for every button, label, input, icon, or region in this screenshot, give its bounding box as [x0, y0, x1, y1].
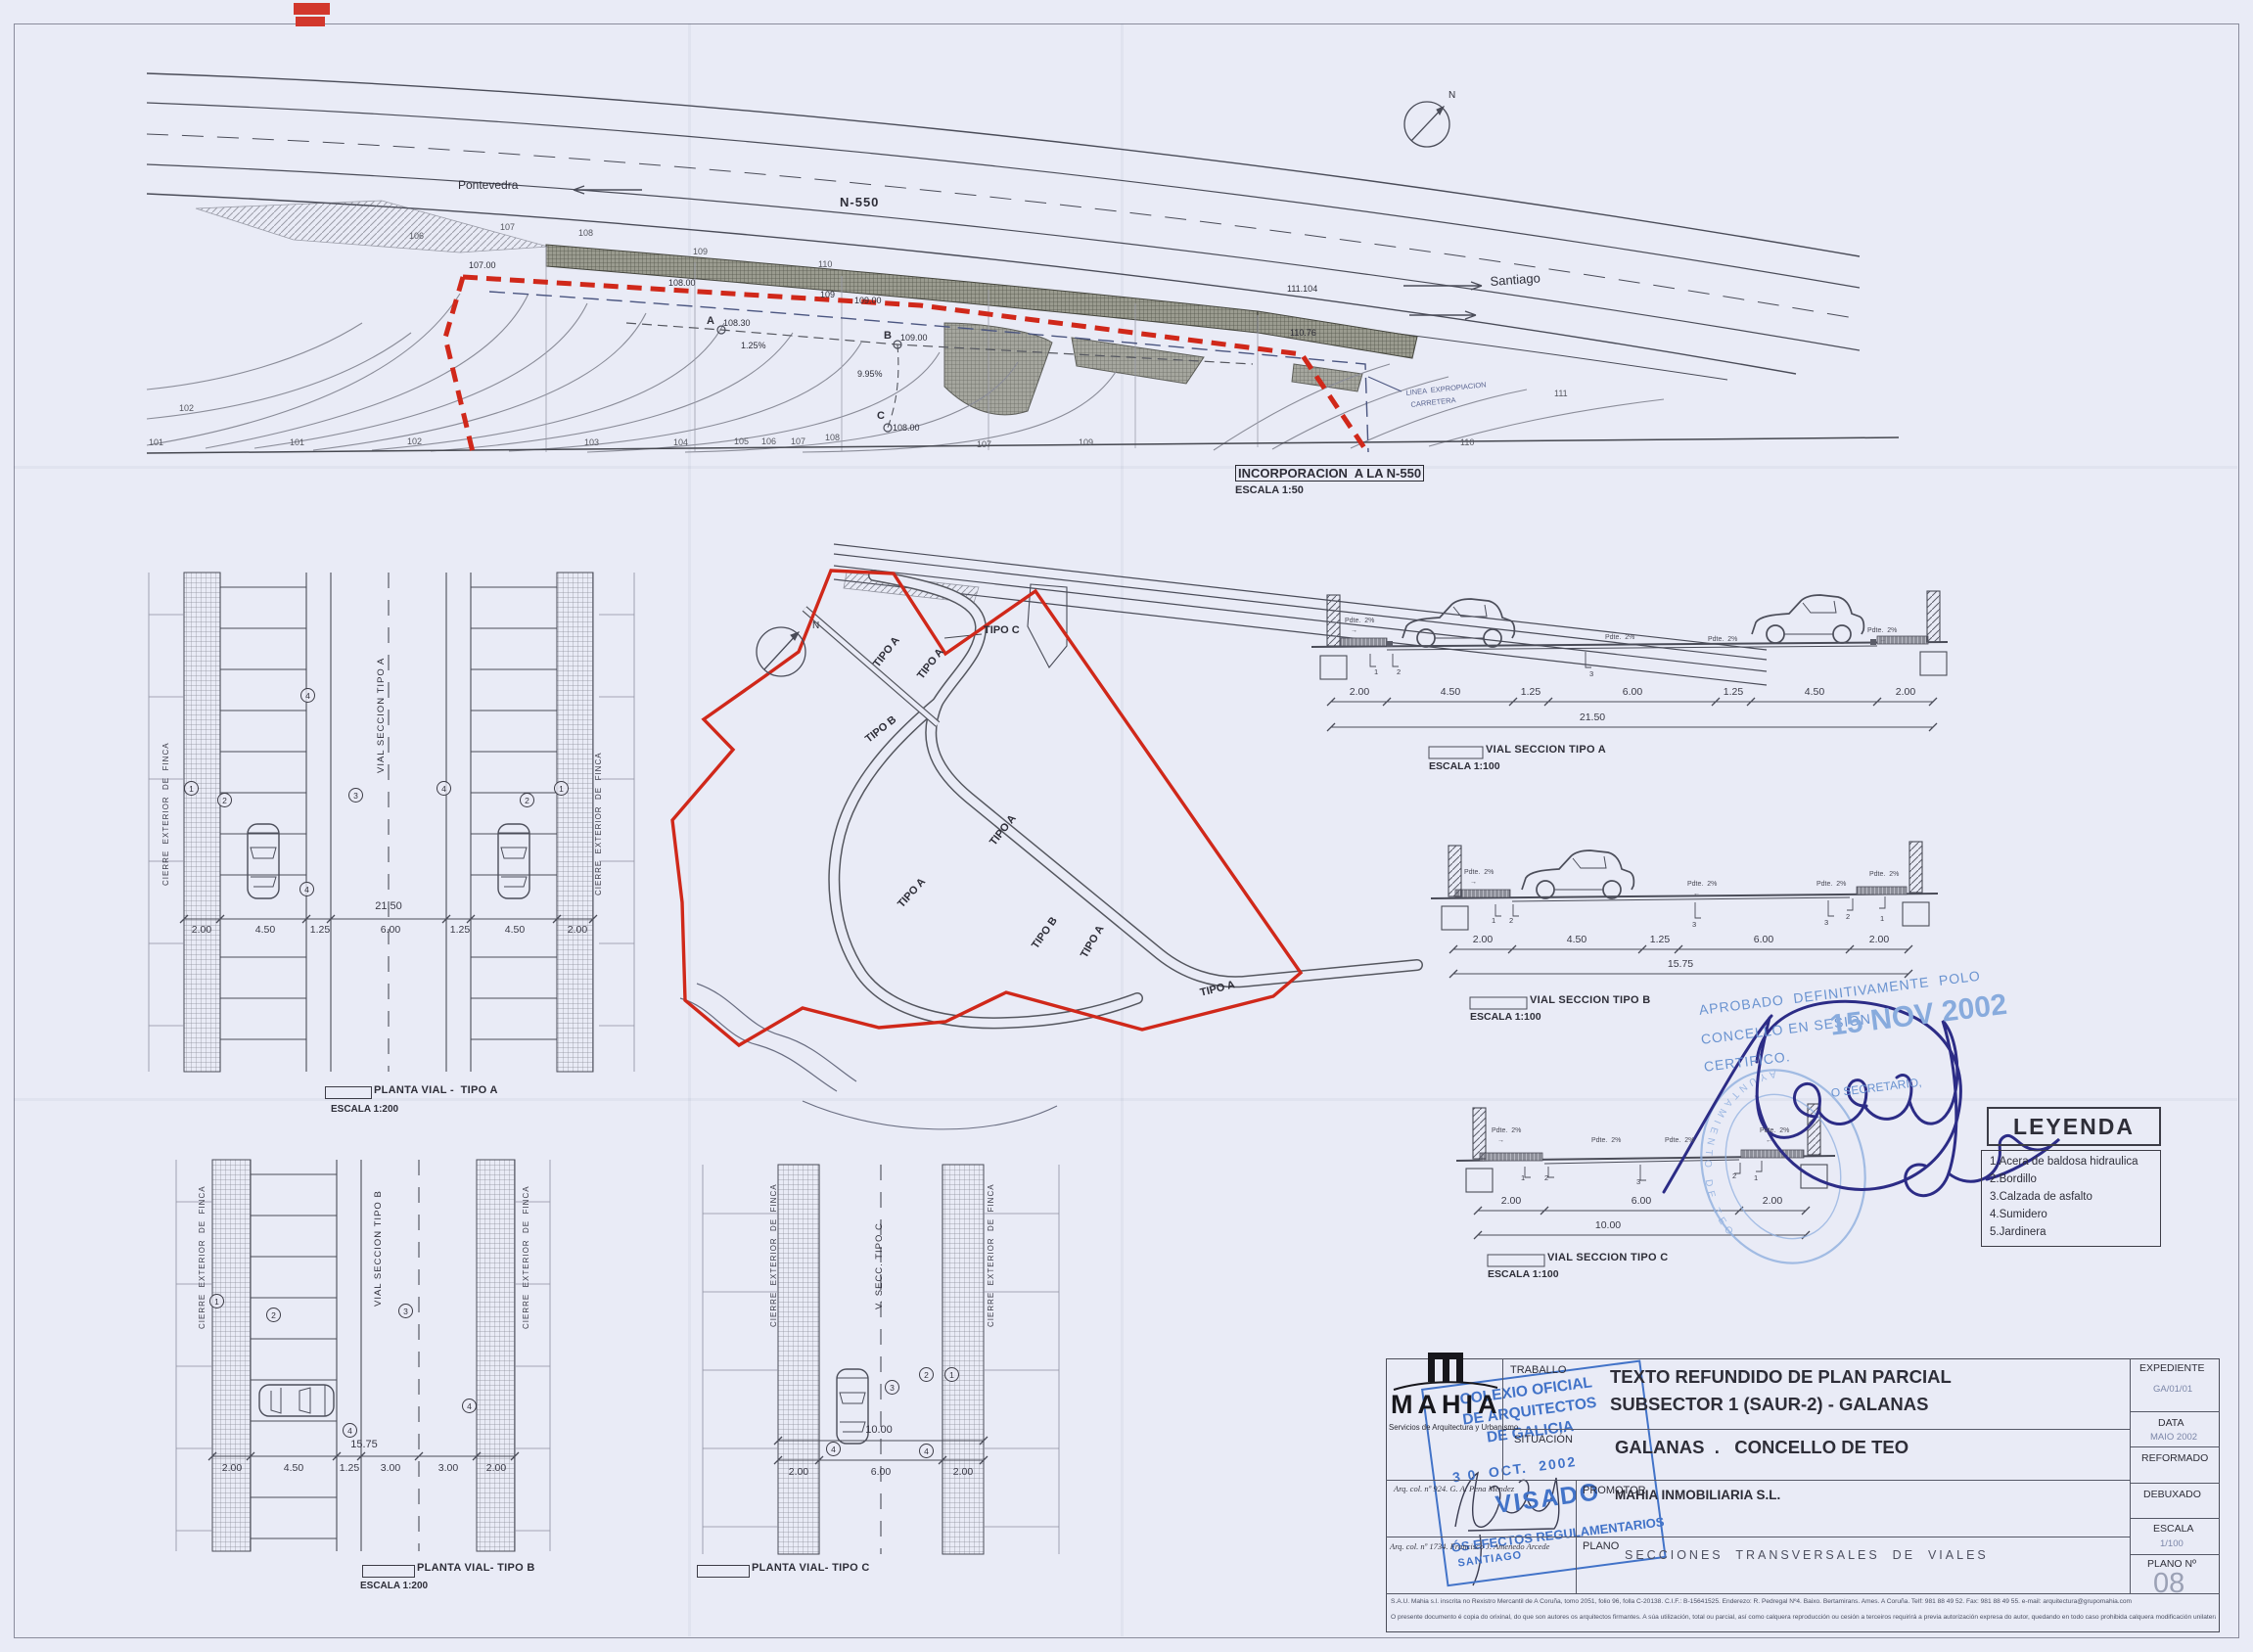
- callout-4: 4: [437, 781, 451, 796]
- dim-label: 2.00: [568, 924, 587, 936]
- title-block-divider: [1386, 1537, 2130, 1537]
- plano-num-value: 08: [2153, 1568, 2184, 1600]
- dim-label: 2.00: [953, 1466, 973, 1478]
- contour-label: 107: [977, 439, 991, 449]
- red-line-elevation: 109: [820, 290, 835, 299]
- callout-4: 4: [300, 688, 315, 703]
- dim-label: 4.50: [505, 924, 525, 936]
- layer-marker: 2: [1732, 1171, 1736, 1180]
- promotor-value: MAHIA INMOBILIARIA S.L.: [1615, 1488, 1780, 1502]
- dim-label: 1.25: [310, 924, 330, 936]
- planta-c-axis-label: V. SECC. TIPO C: [874, 1222, 885, 1309]
- fence-label: CIERRE EXTERIOR DE FINCA: [987, 1183, 995, 1327]
- contour-label: 106: [761, 436, 776, 446]
- layer-marker: 1: [1492, 916, 1495, 925]
- direction-pontevedra-label: Pontevedra: [458, 178, 518, 192]
- dim-label: 2.00: [192, 924, 211, 936]
- dim-label: 4.50: [255, 924, 275, 936]
- dim-label: 2.00: [486, 1462, 506, 1474]
- dim-label: 2.00: [1869, 934, 1889, 945]
- point-c-elevation: 108.00: [893, 423, 920, 433]
- callout-2: 2: [217, 793, 232, 807]
- title-block-divider: [2130, 1358, 2131, 1593]
- point-b-label: B: [884, 330, 892, 342]
- slope-pdte-label: Pdte. 2%: [1665, 1137, 1694, 1144]
- slope-pdte-label: Pdte. 2%: [1345, 618, 1374, 624]
- title-block-divider: [2130, 1518, 2220, 1519]
- section-b-scale: ESCALA 1:100: [1470, 1011, 1541, 1023]
- dim-label: 4.50: [1441, 686, 1460, 698]
- contour-label: 101: [290, 437, 304, 447]
- fence-label: CIERRE EXTERIOR DE FINCA: [198, 1185, 207, 1329]
- callout-1: 1: [209, 1294, 224, 1308]
- layer-marker: 1: [1754, 1173, 1758, 1182]
- contour-label: 102: [407, 436, 422, 446]
- title-block-divider: [2130, 1483, 2220, 1484]
- layer-marker: 2: [1397, 667, 1401, 676]
- section-b-title: VIAL SECCION TIPO B: [1530, 994, 1650, 1006]
- planta-a-scale: ESCALA 1:200: [331, 1104, 398, 1115]
- title-underline-box: [362, 1565, 415, 1578]
- site-plan-linework: [672, 544, 1767, 1129]
- dim-label: 2.00: [222, 1462, 242, 1474]
- dim-label: 4.50: [284, 1462, 303, 1474]
- dim-label: 3.00: [438, 1462, 458, 1474]
- dim-label: 4.50: [1567, 934, 1586, 945]
- expediente-value: GA/01/01: [2153, 1384, 2192, 1395]
- planta-a-title: PLANTA VIAL - TIPO A: [374, 1084, 498, 1096]
- slope-label: 9.95%: [857, 369, 883, 379]
- contour-label: 110: [1460, 437, 1474, 447]
- dim-label: 1.25: [340, 1462, 359, 1474]
- callout-4: 4: [343, 1423, 357, 1438]
- dim-label: 6.00: [871, 1466, 891, 1478]
- north-letter: N: [812, 620, 819, 631]
- legend-item: 3.Calzada de asfalto: [1990, 1191, 2092, 1203]
- red-line-elevation: 109.00: [854, 296, 882, 305]
- callout-3: 3: [885, 1380, 899, 1395]
- dim-label: 1.25: [450, 924, 470, 936]
- dim-label: 6.00: [1623, 686, 1642, 698]
- slope-arrow-icon: →: [1470, 879, 1477, 886]
- point-a-elevation: 108.30: [723, 318, 751, 328]
- architect-2: Arq. col. nº 1734. Francisco J. Amenedo …: [1390, 1541, 1549, 1551]
- legend-item: 1.Acera de baldosa hidraulica: [1990, 1156, 2138, 1168]
- total-dim-label: 21.50: [375, 900, 402, 912]
- slope-pdte-label: Pdte. 2%: [1708, 636, 1737, 643]
- slope-arrow-icon: ←: [1766, 1137, 1772, 1144]
- situacion-value: GALANAS . CONCELLO DE TEO: [1615, 1437, 1908, 1458]
- layer-marker: 3: [1824, 918, 1828, 927]
- contour-label: 102: [179, 403, 194, 413]
- dim-label: 2.00: [1501, 1195, 1521, 1207]
- contour-label: 106: [409, 231, 424, 241]
- top-plan-title: INCORPORACION A LA N-550: [1235, 465, 1424, 482]
- fence-label: CIERRE EXTERIOR DE FINCA: [522, 1185, 530, 1329]
- mahia-logo-subtitle: Servicios de Arquitectura y Urbanismo: [1389, 1423, 1518, 1432]
- contour-label: 104: [673, 437, 688, 447]
- situacion-label: SITUACIÓN: [1514, 1434, 1573, 1445]
- total-dim-label: 10.00: [1595, 1219, 1621, 1231]
- point-a-label: A: [707, 315, 714, 327]
- title-underline-box: [325, 1086, 372, 1099]
- legend-title-box: LEYENDA: [1987, 1107, 2161, 1146]
- callout-2: 2: [919, 1367, 934, 1382]
- expediente-label: EXPEDIENTE: [2139, 1362, 2205, 1374]
- planta-b-linework: [176, 1160, 550, 1551]
- layer-marker: 1: [1880, 914, 1884, 923]
- callout-1: 1: [944, 1367, 959, 1382]
- plano-value: SECCIONES TRANSVERSALES DE VIALES: [1625, 1548, 1989, 1562]
- contour-label: 110: [818, 259, 832, 269]
- slope-pdte-label: Pdte. 2%: [1591, 1137, 1621, 1144]
- slope-arrow-icon: ←: [1879, 637, 1886, 644]
- dim-label: 1.25: [1521, 686, 1540, 698]
- title-block-divider: [2130, 1446, 2220, 1447]
- callout-2: 2: [520, 793, 534, 807]
- spot-elevation: 110.76: [1290, 328, 1316, 338]
- legend-item: 4.Sumidero: [1990, 1209, 2047, 1220]
- dim-label: 3.00: [381, 1462, 400, 1474]
- point-b-elevation: 109.00: [900, 333, 928, 343]
- slope-arrow-icon: ←: [1693, 891, 1700, 897]
- title-block-divider: [1386, 1593, 2220, 1594]
- section-c-title: VIAL SECCION TIPO C: [1547, 1252, 1668, 1263]
- layer-marker: 1: [1374, 667, 1378, 676]
- slope-pdte-label: Pdte. 2%: [1464, 869, 1494, 876]
- total-dim-label: 15.75: [350, 1439, 378, 1450]
- layer-marker: 2: [1544, 1173, 1548, 1182]
- callout-1: 1: [554, 781, 569, 796]
- dim-label: 4.50: [1805, 686, 1824, 698]
- contour-label: 108: [825, 433, 840, 442]
- title-block-divider: [2130, 1411, 2220, 1412]
- dim-label: 6.00: [381, 924, 400, 936]
- escala-label: ESCALA: [2153, 1523, 2193, 1535]
- layer-marker: 3: [1589, 669, 1593, 678]
- slope-arrow-icon: →: [1351, 627, 1357, 634]
- road-n550-label: N-550: [840, 195, 879, 209]
- fence-label: CIERRE EXTERIOR DE FINCA: [594, 752, 603, 895]
- spot-elevation: 111.104: [1287, 284, 1317, 294]
- callout-3: 3: [348, 788, 363, 803]
- legal-line-2: O presente documento é copia do orixinal…: [1391, 1614, 2216, 1621]
- drawing-sheet: AYUNTAMIENTO DE TEO Pontevedra N-550 San…: [0, 0, 2253, 1652]
- dim-label: 2.00: [1350, 686, 1369, 698]
- legend-title: LEYENDA: [2013, 1114, 2135, 1140]
- total-dim-label: 10.00: [865, 1424, 893, 1436]
- traballo-value-line2: SUBSECTOR 1 (SAUR-2) - GALANAS: [1610, 1394, 1928, 1415]
- callout-1: 1: [184, 781, 199, 796]
- section-a-title: VIAL SECCION TIPO A: [1486, 744, 1606, 756]
- slope-pdte-label: Pdte. 2%: [1760, 1127, 1789, 1134]
- tipo-label: TIPO C: [984, 624, 1020, 636]
- contour-label: 111: [1554, 389, 1568, 398]
- top-plan-linework: [147, 73, 1899, 453]
- callout-4: 4: [462, 1399, 477, 1413]
- layer-marker: 2: [1509, 916, 1513, 925]
- contour-label: 101: [149, 437, 163, 447]
- planta-a-axis-label: VIAL SECCION TIPO A: [376, 658, 387, 773]
- title-block-divider: [1502, 1429, 2130, 1430]
- slope-pdte-label: Pdte. 2%: [1605, 634, 1634, 641]
- dim-label: 6.00: [1754, 934, 1773, 945]
- legal-line-1: S.A.U. Mahia s.l. inscrita no Rexistro M…: [1391, 1598, 2216, 1605]
- legend-item: 5.Jardinera: [1990, 1226, 2046, 1238]
- title-underline-box: [697, 1565, 750, 1578]
- mahia-logo-text: MAHIA: [1391, 1390, 1502, 1420]
- plano-label: PLANO: [1583, 1540, 1619, 1552]
- north-letter: N: [1448, 90, 1455, 101]
- dim-label: 2.00: [1763, 1195, 1782, 1207]
- data-label: DATA: [2158, 1417, 2184, 1429]
- callout-2: 2: [266, 1308, 281, 1322]
- planta-b-title: PLANTA VIAL- TIPO B: [417, 1562, 535, 1574]
- section-c-scale: ESCALA 1:100: [1488, 1268, 1559, 1280]
- section-a-scale: ESCALA 1:100: [1429, 760, 1500, 772]
- layer-marker: 1: [1521, 1173, 1525, 1182]
- callout-4: 4: [826, 1442, 841, 1456]
- fence-label: CIERRE EXTERIOR DE FINCA: [161, 742, 170, 886]
- contour-label: 107: [500, 222, 515, 232]
- red-line-elevation: 107.00: [469, 260, 496, 270]
- contour-label: 103: [584, 437, 599, 447]
- slope-pdte-label: Pdte. 2%: [1687, 881, 1717, 888]
- dim-label: 2.00: [789, 1466, 808, 1478]
- layer-marker: 3: [1692, 920, 1696, 929]
- traballo-label: TRABALLO: [1510, 1364, 1566, 1376]
- callout-4: 4: [299, 882, 314, 896]
- slope-arrow-icon: →: [1497, 1137, 1504, 1144]
- contour-label: 107: [791, 436, 805, 446]
- top-plan-scale: ESCALA 1:50: [1235, 484, 1304, 496]
- contour-label: 108: [578, 228, 593, 238]
- slope-label: 1.25%: [741, 341, 766, 350]
- slope-pdte-label: Pdte. 2%: [1869, 871, 1899, 878]
- planta-a-linework: [149, 573, 634, 1072]
- planta-b-scale: ESCALA 1:200: [360, 1581, 428, 1591]
- legend-items-box: 1.Acera de baldosa hidraulica 2.Bordillo…: [1981, 1150, 2161, 1247]
- slope-pdte-label: Pdte. 2%: [1867, 627, 1897, 634]
- contour-label: 109: [693, 247, 708, 256]
- title-block-divider: [1386, 1480, 2130, 1481]
- legend-item: 2.Bordillo: [1990, 1173, 2037, 1185]
- dim-label: 2.00: [1473, 934, 1493, 945]
- point-c-label: C: [877, 410, 885, 422]
- reformado-label: REFORMADO: [2141, 1452, 2208, 1464]
- callout-3: 3: [398, 1304, 413, 1318]
- slope-pdte-label: Pdte. 2%: [1492, 1127, 1521, 1134]
- debuxado-label: DEBUXADO: [2143, 1489, 2201, 1500]
- planta-c-title: PLANTA VIAL- TIPO C: [752, 1562, 870, 1574]
- escala-value: 1/100: [2160, 1538, 2184, 1549]
- dim-label: 1.25: [1650, 934, 1670, 945]
- red-line-elevation: 108.00: [668, 278, 696, 288]
- callout-4: 4: [919, 1444, 934, 1458]
- contour-label: 109: [1079, 437, 1093, 447]
- section-a-linework: [1311, 591, 1948, 758]
- contour-label: 105: [734, 436, 749, 446]
- data-value: MAIO 2002: [2150, 1432, 2197, 1443]
- dim-label: 6.00: [1632, 1195, 1651, 1207]
- title-block-divider: [2130, 1554, 2220, 1555]
- layer-marker: 2: [1846, 912, 1850, 921]
- layer-marker: 3: [1636, 1177, 1640, 1186]
- total-dim-label: 21.50: [1580, 711, 1605, 723]
- dim-label: 2.00: [1896, 686, 1915, 698]
- slope-pdte-label: Pdte. 2%: [1816, 881, 1846, 888]
- fence-label: CIERRE EXTERIOR DE FINCA: [769, 1183, 778, 1327]
- dim-label: 1.25: [1724, 686, 1743, 698]
- traballo-value-line1: TEXTO REFUNDIDO DE PLAN PARCIAL: [1610, 1366, 1952, 1388]
- planta-b-axis-label: VIAL SECCION TIPO B: [373, 1190, 384, 1307]
- architect-1: Arq. col. nº 924. G. A. Pena Mendez: [1394, 1484, 1514, 1493]
- total-dim-label: 15.75: [1668, 958, 1693, 970]
